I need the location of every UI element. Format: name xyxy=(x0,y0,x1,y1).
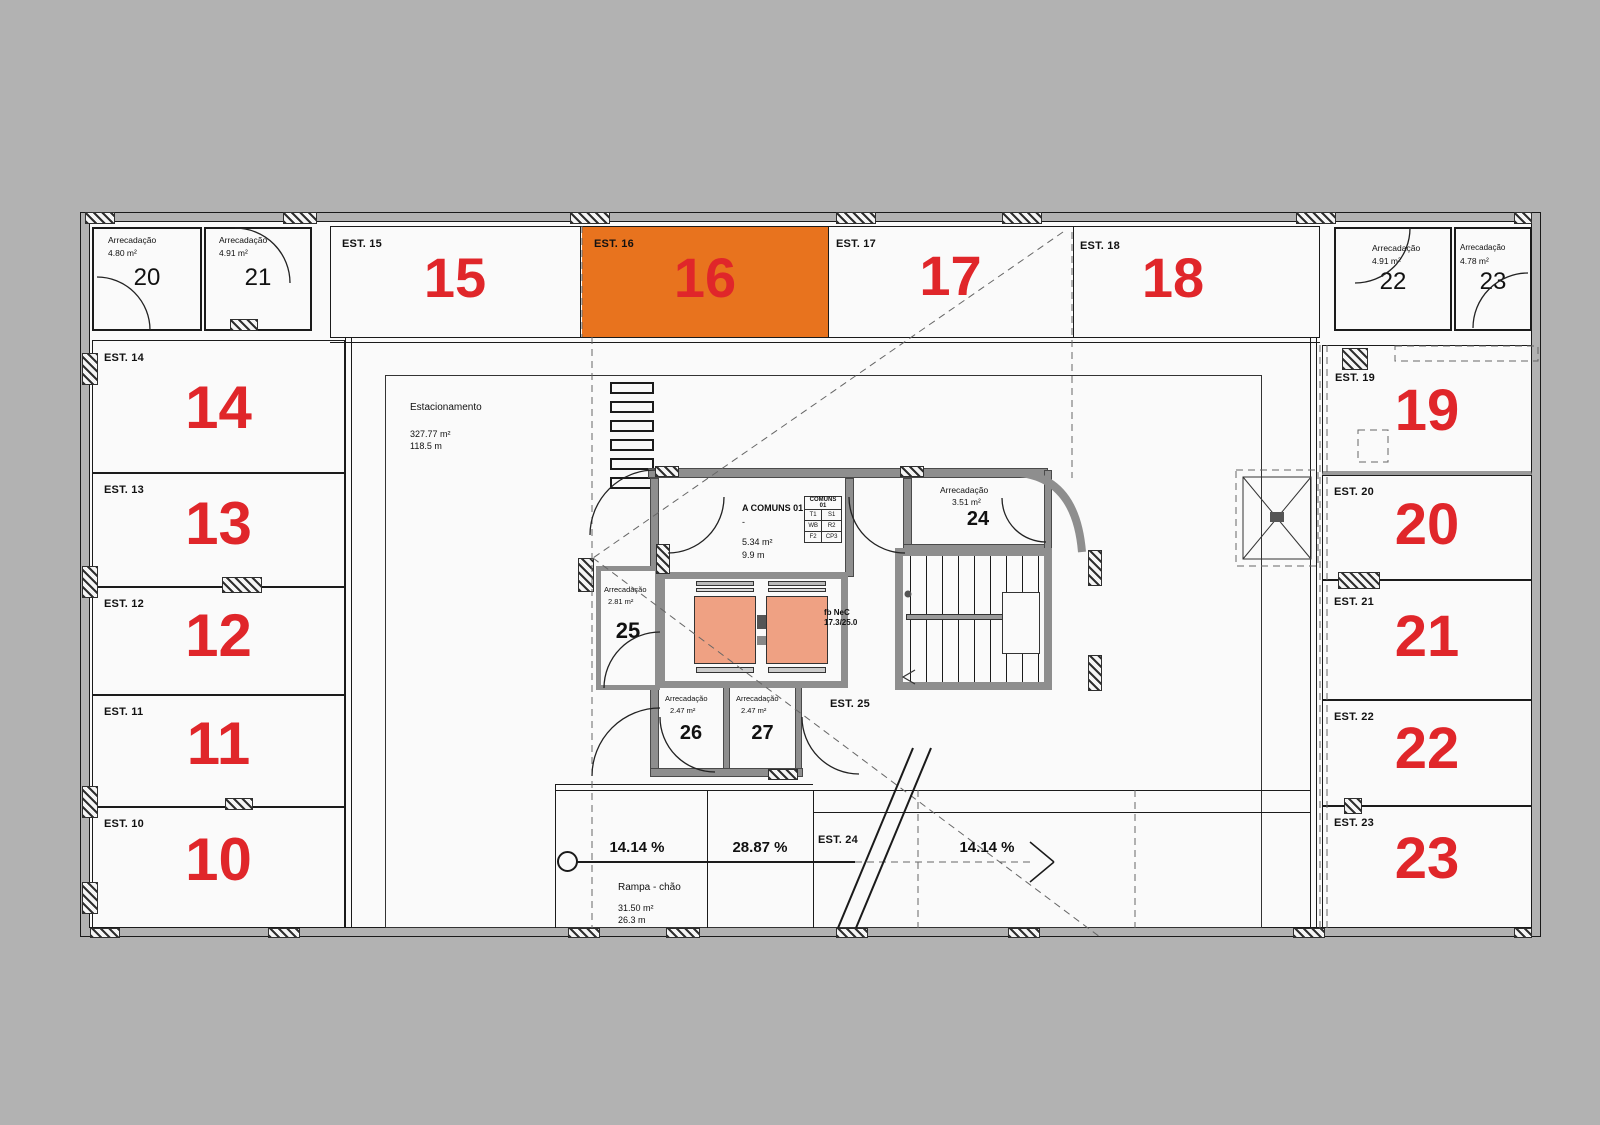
wall-hatch xyxy=(82,882,98,914)
wall-hatch xyxy=(578,558,594,592)
storage-20-number: 20 xyxy=(92,264,202,292)
elevator-machinery xyxy=(696,588,754,592)
est-10-number: 10 xyxy=(92,830,345,890)
elevator-car-2 xyxy=(766,596,828,664)
wall-hatch xyxy=(82,353,98,385)
wall-hatch xyxy=(1296,212,1336,224)
core-wall xyxy=(795,685,802,775)
wall-hatch xyxy=(900,466,924,477)
storage-24-type: Arrecadação xyxy=(940,484,988,497)
storage-21-type: Arrecadação xyxy=(219,234,267,247)
comuns-area: 5.34 m² xyxy=(742,536,773,550)
wall-hatch xyxy=(1342,348,1368,370)
est-12-number: 12 xyxy=(92,606,345,666)
wall-hatch xyxy=(1008,928,1040,938)
ramp-name: Rampa - chão xyxy=(618,880,681,895)
wall-hatch xyxy=(90,928,120,938)
est-17-number[interactable]: 17 xyxy=(828,248,1073,304)
ramp-line xyxy=(555,790,1310,791)
storage-25-area: 2.81 m² xyxy=(608,596,633,607)
est-16-label: EST. 16 xyxy=(594,238,634,250)
comuns-schedule-table: COMUNS 01 T1S1 WBR2 F2CP3 xyxy=(804,496,842,543)
hall-name: Estacionamento xyxy=(410,400,482,415)
core-wall xyxy=(723,685,730,775)
storage-24-area: 3.51 m² xyxy=(952,496,981,509)
elevator-rail xyxy=(757,636,766,645)
storage-22-number: 22 xyxy=(1334,268,1452,296)
storage-26-number: 26 xyxy=(659,722,723,745)
wall-hatch xyxy=(666,928,700,938)
est-15-label: EST. 15 xyxy=(342,238,382,250)
ramp-line xyxy=(813,790,814,928)
wall-hatch xyxy=(570,212,610,224)
storage-20-area: 4.80 m² xyxy=(108,247,137,260)
est-21-number: 21 xyxy=(1322,608,1532,666)
elevator-machinery xyxy=(768,581,826,586)
storage-23-number: 23 xyxy=(1454,268,1532,296)
elevator-car-1 xyxy=(694,596,756,664)
wall-hatch xyxy=(656,544,670,574)
crosswalk-bar xyxy=(610,382,654,394)
ramp-line xyxy=(707,790,708,928)
comuns-length: 9.9 m xyxy=(742,549,765,563)
est-23-label: EST. 23 xyxy=(1334,817,1374,829)
wall-hatch xyxy=(82,566,98,598)
wall-hatch xyxy=(836,928,868,938)
floor-plan-canvas: Arrecadação 4.80 m² 20 Arrecadação 4.91 … xyxy=(0,0,1600,1125)
wall-hatch xyxy=(836,212,876,224)
crosswalk-bar xyxy=(610,477,654,489)
wall-hatch xyxy=(1088,550,1102,586)
crosswalk-bar xyxy=(610,401,654,413)
est-14-label: EST. 14 xyxy=(104,352,144,364)
est-24-label[interactable]: EST. 24 xyxy=(818,834,858,846)
storage-27-area: 2.47 m² xyxy=(741,705,766,716)
wall-hatch xyxy=(568,928,600,938)
hall-right-wall xyxy=(1310,337,1317,928)
comuns-table-header: COMUNS 01 xyxy=(805,497,842,510)
est-16-number[interactable]: 16 xyxy=(582,250,828,306)
elevator-rail xyxy=(757,615,766,629)
ramp-slope-left: 14.14 % xyxy=(572,839,702,856)
est-18-number[interactable]: 18 xyxy=(1073,250,1273,306)
wall-hatch xyxy=(225,798,253,810)
wall-hatch xyxy=(85,212,115,224)
elevator-machinery xyxy=(696,581,754,586)
storage-25-type: Arrecadação xyxy=(604,584,647,595)
wall-hatch xyxy=(222,577,262,593)
stair-handrail xyxy=(906,614,1003,620)
est-14-number: 14 xyxy=(92,378,345,438)
elevator-note: fb NeC 17.3/25.0 xyxy=(824,608,857,629)
hall-left-wall xyxy=(345,337,352,928)
stair-guard xyxy=(1002,592,1040,654)
wall-hatch xyxy=(1088,655,1102,691)
storage-26-area: 2.47 m² xyxy=(670,705,695,716)
est-21-label: EST. 21 xyxy=(1334,596,1374,608)
wall-hatch xyxy=(1338,572,1380,589)
wall-hatch xyxy=(268,928,300,938)
storage-25-number: 25 xyxy=(601,618,655,644)
storage-20-type: Arrecadação xyxy=(108,234,156,247)
wall-hatch xyxy=(768,769,798,780)
crosswalk-bar xyxy=(610,439,654,451)
wall-hatch xyxy=(1344,798,1362,814)
storage-23-type: Arrecadação xyxy=(1460,242,1505,254)
ramp-length: 26.3 m xyxy=(618,914,646,928)
core-wall xyxy=(650,685,659,775)
wall-hatch xyxy=(82,786,98,818)
storage-21-number: 21 xyxy=(204,264,312,292)
storage-23-area: 4.78 m² xyxy=(1460,255,1489,268)
ramp-line xyxy=(555,784,813,785)
elevator-machinery xyxy=(696,667,754,673)
hall-top-wall xyxy=(330,337,1320,343)
wall-hatch xyxy=(1514,212,1532,224)
est-13-number: 13 xyxy=(92,494,345,554)
ramp-line xyxy=(813,812,1310,813)
wall-hatch xyxy=(655,466,679,477)
est-25-label[interactable]: EST. 25 xyxy=(830,698,870,710)
divider xyxy=(580,226,581,338)
core-wall xyxy=(845,478,854,577)
storage-22-type: Arrecadação xyxy=(1372,242,1420,255)
ramp-line xyxy=(555,784,556,928)
est-10-label: EST. 10 xyxy=(104,818,144,830)
est-23-number: 23 xyxy=(1322,830,1532,888)
core-top-wall xyxy=(648,468,1048,478)
crosswalk-bar xyxy=(610,420,654,432)
elevator-machinery xyxy=(768,667,826,673)
wall-hatch xyxy=(1514,928,1532,938)
est-20-number: 20 xyxy=(1322,496,1532,554)
storage-24-number: 24 xyxy=(912,508,1044,531)
comuns-dash: - xyxy=(742,516,745,530)
storage-21-area: 4.91 m² xyxy=(219,247,248,260)
storage-27-type: Arrecadação xyxy=(736,693,779,704)
ramp-centerline xyxy=(567,861,855,863)
storage-27-number: 27 xyxy=(730,722,795,745)
est-22-number: 22 xyxy=(1322,720,1532,778)
ramp-slope-center: 28.87 % xyxy=(700,839,820,856)
est-19-number: 19 xyxy=(1322,382,1532,440)
ramp-slope-right: 14.14 % xyxy=(927,839,1047,856)
storage-22-area: 4.91 m² xyxy=(1372,255,1401,268)
wall-hatch xyxy=(283,212,317,224)
comuns-name: A COMUNS 01 xyxy=(742,502,803,516)
wall-hatch xyxy=(230,319,258,331)
wall-hatch xyxy=(1293,928,1325,938)
core-wall xyxy=(903,478,912,548)
est-15-number[interactable]: 15 xyxy=(330,250,580,306)
est-11-number: 11 xyxy=(92,714,345,774)
storage-26-type: Arrecadação xyxy=(665,693,708,704)
elevator-machinery xyxy=(768,588,826,592)
wall-hatch xyxy=(1002,212,1042,224)
hall-length: 118.5 m xyxy=(410,440,442,454)
